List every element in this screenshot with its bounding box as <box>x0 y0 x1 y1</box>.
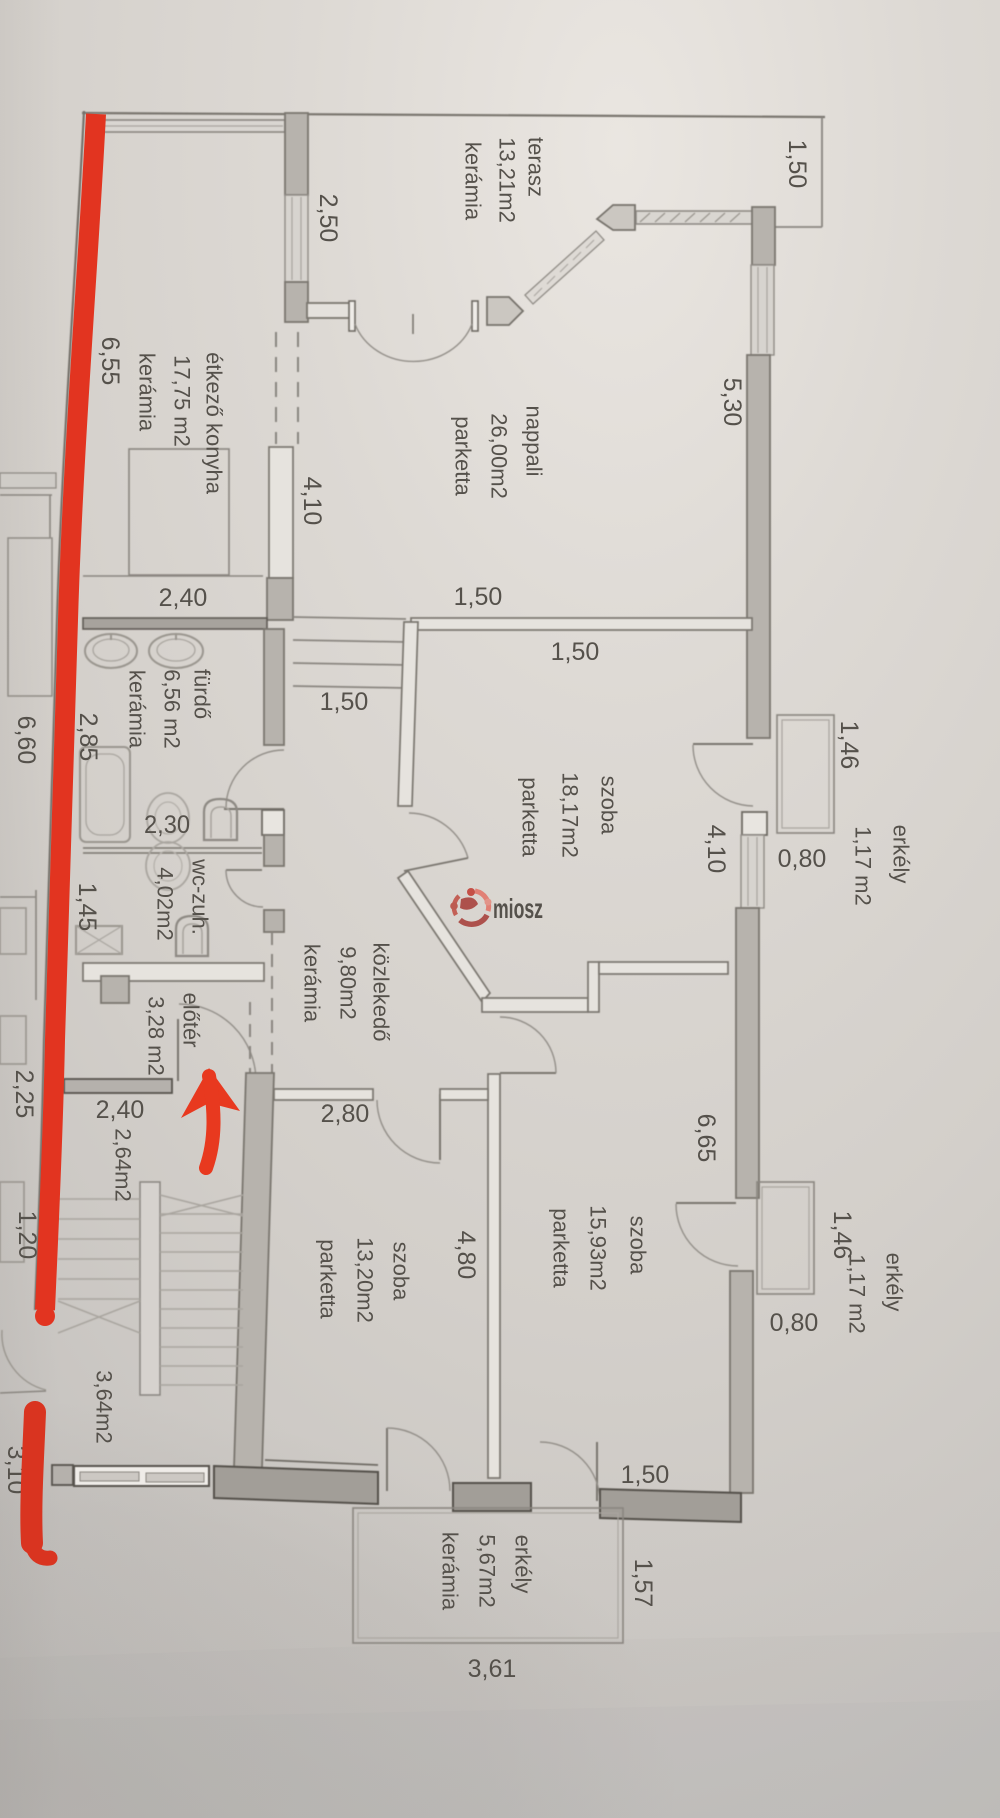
svg-text:1,46: 1,46 <box>835 721 863 770</box>
svg-text:szoba: szoba <box>626 1216 651 1275</box>
svg-text:étkező konyha: étkező konyha <box>202 352 227 495</box>
svg-text:3,61: 3,61 <box>468 1655 517 1683</box>
svg-text:1,50: 1,50 <box>320 688 369 716</box>
svg-text:0,80: 0,80 <box>778 845 827 873</box>
svg-text:parketta: parketta <box>518 777 543 857</box>
svg-text:0,80: 0,80 <box>770 1309 819 1337</box>
svg-text:2,85: 2,85 <box>74 713 102 762</box>
svg-text:nappali: nappali <box>522 406 547 477</box>
svg-text:terasz: terasz <box>524 137 549 197</box>
svg-text:3,28 m2: 3,28 m2 <box>144 996 169 1076</box>
svg-text:erkély: erkély <box>511 1535 536 1594</box>
svg-text:1,50: 1,50 <box>621 1461 670 1489</box>
svg-text:17,75 m2: 17,75 m2 <box>170 355 195 447</box>
svg-text:parketta: parketta <box>451 416 476 496</box>
svg-text:2,40: 2,40 <box>159 584 208 612</box>
svg-text:6,56 m2: 6,56 m2 <box>160 669 185 749</box>
svg-text:közlekedő: közlekedő <box>369 942 394 1041</box>
svg-text:1,45: 1,45 <box>73 883 101 932</box>
svg-text:kerámia: kerámia <box>461 142 486 221</box>
svg-text:6,55: 6,55 <box>96 337 124 386</box>
svg-text:1,50: 1,50 <box>454 583 503 611</box>
svg-text:erkély: erkély <box>889 825 914 884</box>
svg-text:6,60: 6,60 <box>12 716 40 765</box>
svg-text:9,80m2: 9,80m2 <box>336 946 361 1019</box>
svg-text:1,57: 1,57 <box>629 1559 657 1608</box>
svg-text:kerámia: kerámia <box>125 670 150 749</box>
svg-text:kerámia: kerámia <box>135 353 160 432</box>
svg-text:1,17 m2: 1,17 m2 <box>851 826 876 906</box>
svg-text:2,30: 2,30 <box>144 811 190 839</box>
svg-text:wc-zuh.: wc-zuh. <box>188 858 213 935</box>
svg-text:5,30: 5,30 <box>718 378 746 427</box>
svg-text:parketta: parketta <box>549 1208 574 1288</box>
svg-text:13,21m2: 13,21m2 <box>495 137 520 223</box>
svg-text:15,93m2: 15,93m2 <box>586 1205 611 1291</box>
svg-text:1,46: 1,46 <box>828 1211 856 1260</box>
svg-text:erkély: erkély <box>882 1253 907 1312</box>
svg-text:4,02m2: 4,02m2 <box>153 867 178 940</box>
svg-text:4,10: 4,10 <box>298 477 326 526</box>
svg-text:6,65: 6,65 <box>692 1114 720 1163</box>
svg-text:szoba: szoba <box>597 776 622 835</box>
svg-text:előtér: előtér <box>179 992 204 1047</box>
svg-text:26,00m2: 26,00m2 <box>487 413 512 499</box>
svg-text:5,67m2: 5,67m2 <box>475 1534 500 1607</box>
svg-text:kerámia: kerámia <box>438 1532 463 1611</box>
svg-text:1,50: 1,50 <box>551 638 600 666</box>
svg-text:kerámia: kerámia <box>300 944 325 1023</box>
svg-text:2,25: 2,25 <box>10 1070 38 1119</box>
svg-text:1,17 m2: 1,17 m2 <box>845 1254 870 1334</box>
svg-text:13,20m2: 13,20m2 <box>353 1237 378 1323</box>
svg-text:szoba: szoba <box>389 1242 414 1301</box>
svg-text:miosz: miosz <box>493 893 543 924</box>
svg-text:2,50: 2,50 <box>314 194 342 243</box>
svg-text:4,10: 4,10 <box>702 825 730 874</box>
svg-text:1,50: 1,50 <box>783 140 811 189</box>
svg-text:fürdő: fürdő <box>190 669 215 719</box>
svg-text:4,80: 4,80 <box>452 1231 480 1280</box>
svg-text:2,64m2: 2,64m2 <box>111 1128 136 1201</box>
svg-text:2,40: 2,40 <box>96 1096 145 1124</box>
svg-text:3,64m2: 3,64m2 <box>92 1370 117 1443</box>
svg-text:1,20: 1,20 <box>13 1211 41 1260</box>
svg-text:2,80: 2,80 <box>321 1100 370 1128</box>
svg-text:18,17m2: 18,17m2 <box>558 772 583 858</box>
svg-text:parketta: parketta <box>316 1239 341 1319</box>
